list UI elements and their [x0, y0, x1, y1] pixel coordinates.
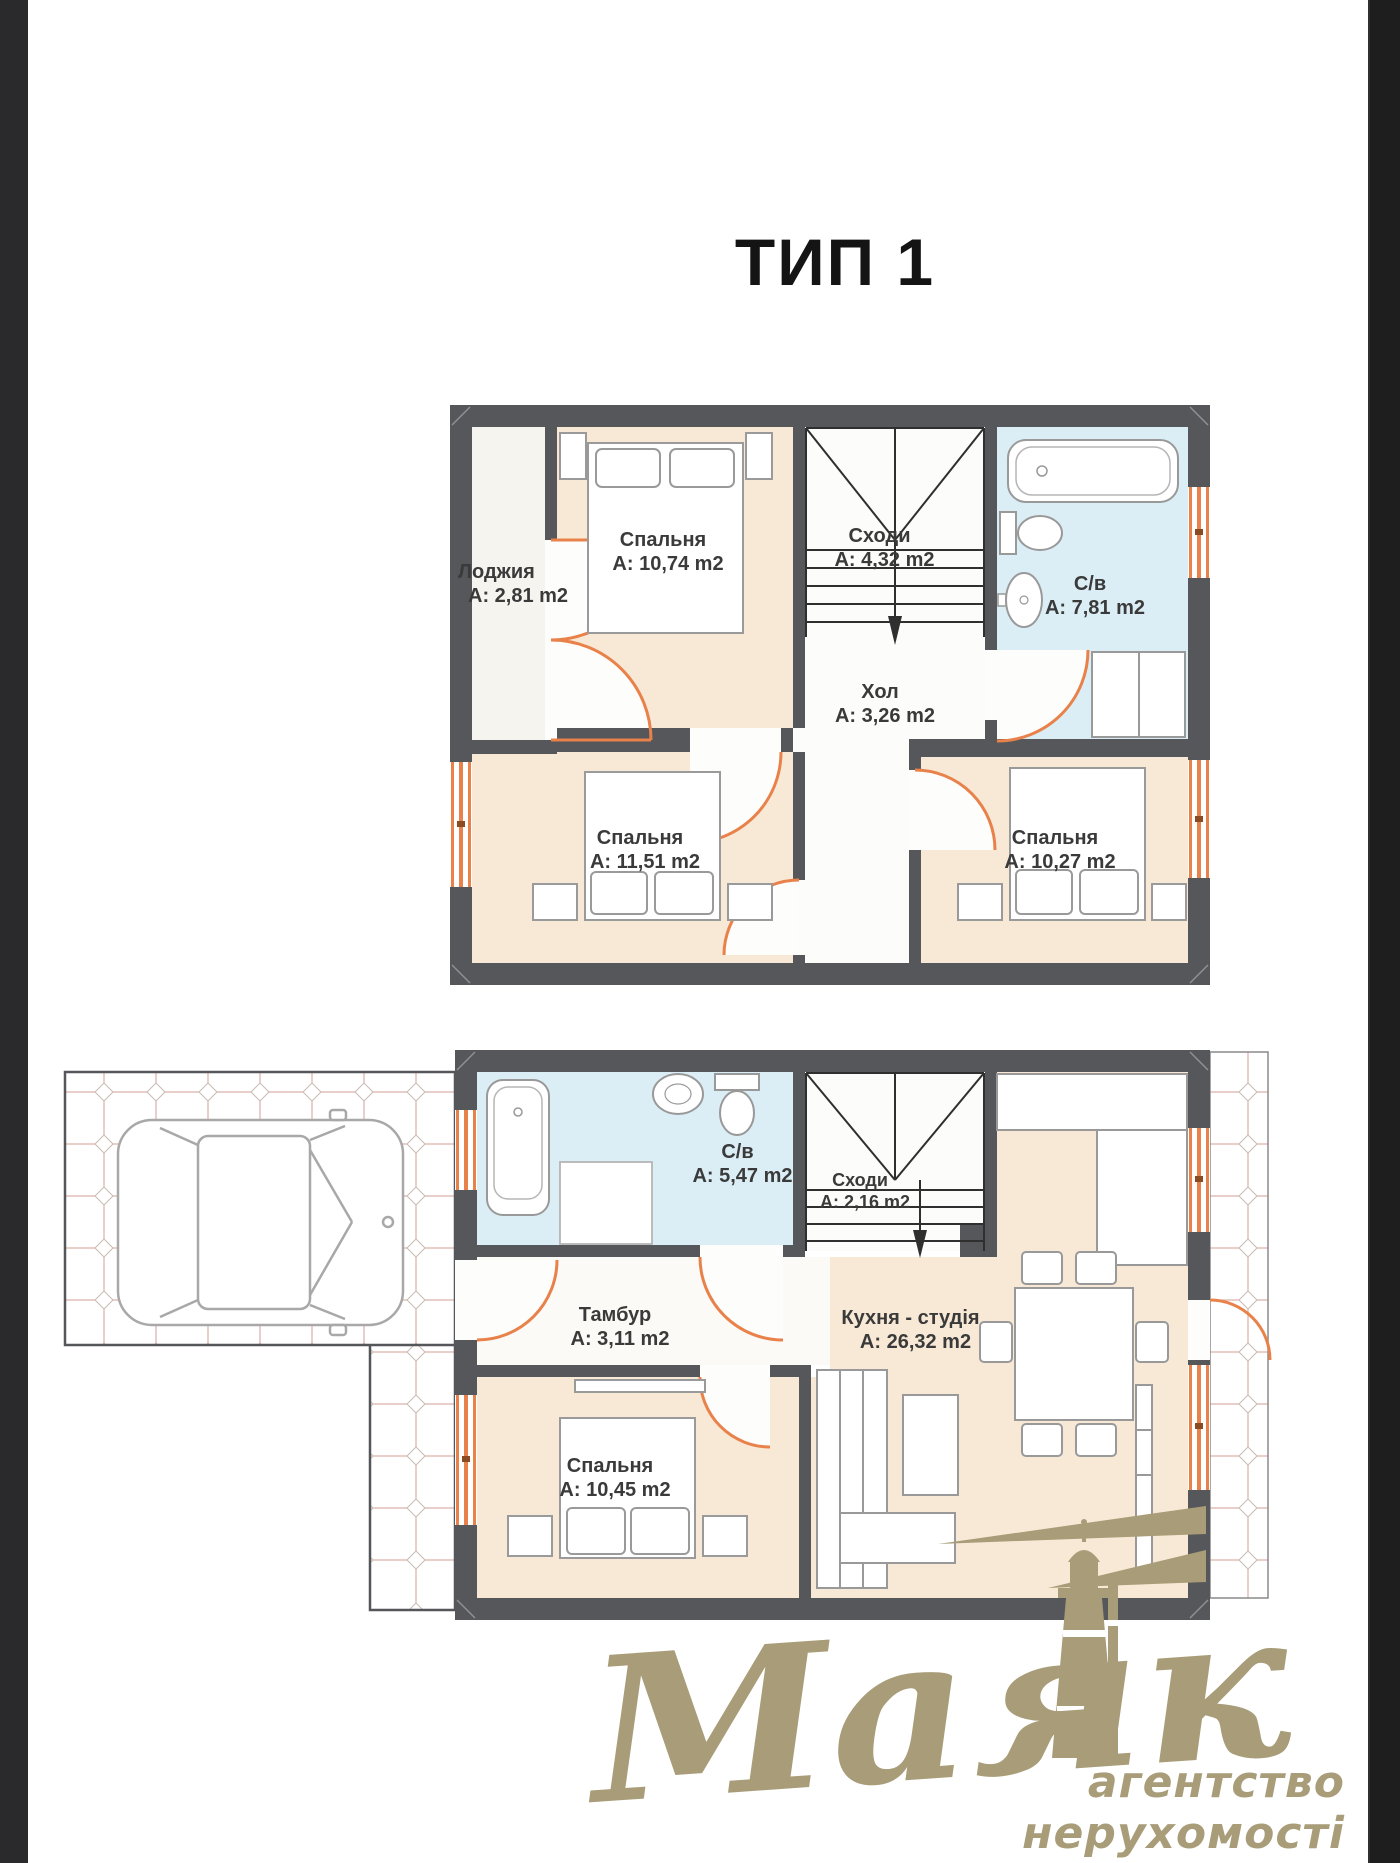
room-label-bedroom1: Спальня А: 10,74 m2 — [568, 528, 758, 577]
room-label-bedroom3: Спальня А: 10,27 m2 — [960, 826, 1150, 875]
room-label-bedroom-lower: Спальня А: 10,45 m2 — [515, 1454, 705, 1503]
kitchen-units — [817, 1370, 1152, 1588]
parking-paving — [65, 1072, 455, 1610]
page-title: ТИП 1 — [615, 224, 1055, 300]
kitchen-counter — [997, 1074, 1187, 1265]
lighthouse-icon — [1052, 1519, 1118, 1758]
room-label-vestibule: Тамбур А: 3,11 m2 — [520, 1303, 710, 1352]
bath-counter — [560, 1162, 652, 1244]
logo-tagline: агентство нерухомості — [845, 1757, 1345, 1859]
left-black-bar — [0, 0, 28, 1863]
door-swing-areas — [477, 1257, 783, 1447]
toilet-icon — [1000, 512, 1062, 554]
floorplan-page: ТИП 1 — [0, 0, 1400, 1863]
bath-cabinet-icon — [1092, 652, 1185, 737]
room-label-bathroom-upper: С/в А: 7,81 m2 — [1000, 572, 1180, 621]
terrace-paving — [1210, 1052, 1268, 1598]
light-beam — [938, 1506, 1206, 1544]
light-beam — [1048, 1550, 1206, 1588]
toilet-icon — [715, 1074, 759, 1135]
room-label-bedroom2: Спальня А: 11,51 m2 — [545, 826, 735, 875]
room-label-stairs-lower: Сходи А: 2,16 m2 — [790, 1170, 930, 1214]
room-label-kitchen: Кухня - студія А: 26,32 m2 — [808, 1306, 1013, 1355]
room-label-stairs-upper: Сходи А: 4,32 m2 — [792, 524, 967, 573]
room-label-loggia: Лоджия А: 2,81 m2 — [458, 560, 578, 609]
car-icon — [118, 1110, 403, 1335]
stairs-icon — [806, 1073, 984, 1258]
bathtub-icon — [1008, 440, 1178, 502]
bathtub-icon — [487, 1080, 549, 1215]
sink-icon — [653, 1074, 703, 1114]
room-label-hall: Хол А: 3,26 m2 — [795, 680, 965, 729]
right-black-bar — [1368, 0, 1400, 1863]
